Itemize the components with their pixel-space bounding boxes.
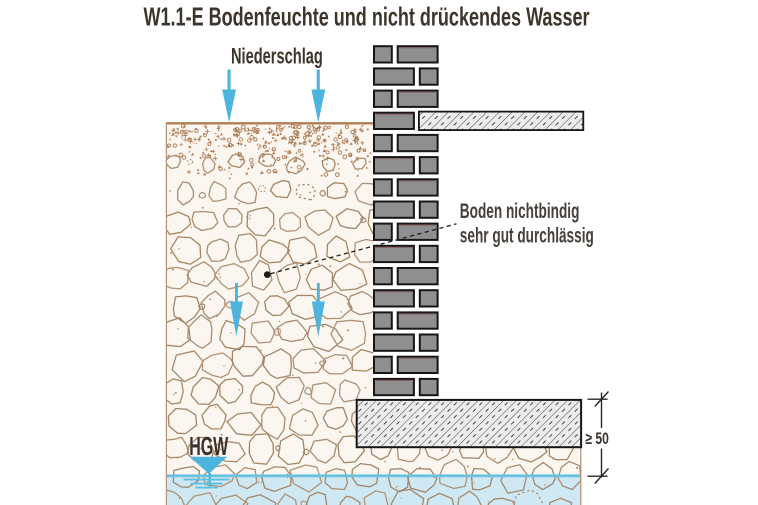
svg-text:Boden nichtbindig: Boden nichtbindig — [460, 199, 580, 223]
svg-text:W1.1-E Bodenfeuchte und nicht: W1.1-E Bodenfeuchte und nicht drückendes… — [144, 2, 590, 31]
svg-text:≥ 50: ≥ 50 — [585, 430, 609, 448]
svg-text:sehr gut durchlässig: sehr gut durchlässig — [460, 224, 594, 248]
svg-text:HGW: HGW — [189, 432, 229, 461]
svg-text:Niederschlag: Niederschlag — [231, 45, 323, 70]
